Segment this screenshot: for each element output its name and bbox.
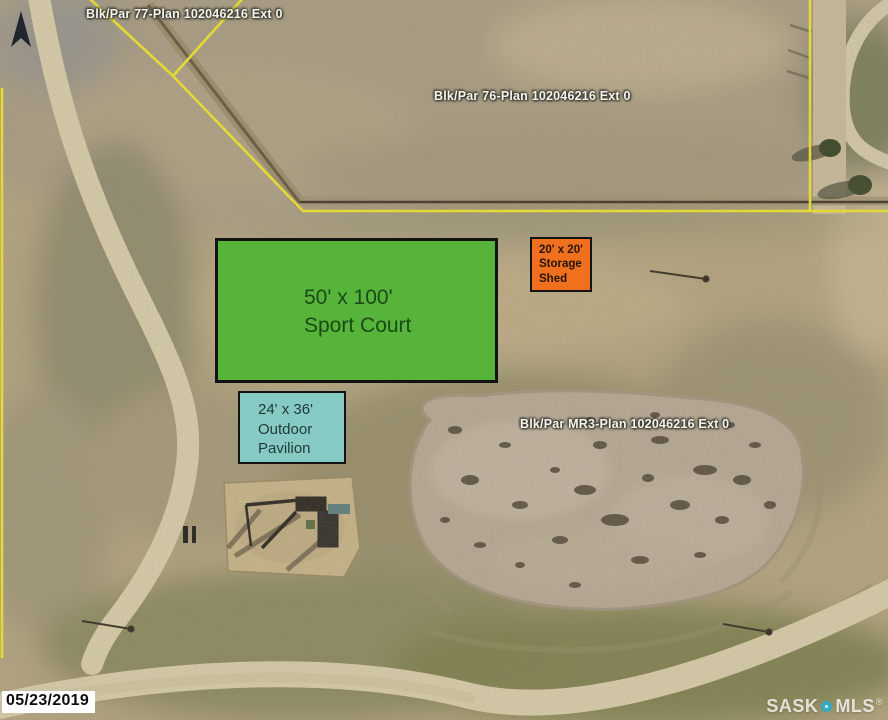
pavilion-name-line2: Pavilion: [258, 439, 344, 459]
parcel-label-76: Blk/Par 76-Plan 102046216 Ext 0: [434, 89, 631, 103]
pavilion-overlay: 24' x 36' Outdoor Pavilion: [238, 391, 346, 464]
north-arrow-icon: [7, 9, 35, 51]
sport-court-name: Sport Court: [304, 312, 495, 340]
mls-pin-icon: [821, 701, 832, 712]
parcel-label-mr3: Blk/Par MR3-Plan 102046216 Ext 0: [520, 417, 729, 431]
pavilion-name-line1: Outdoor: [258, 420, 344, 440]
sask-mls-watermark: SASK MLS ®: [766, 696, 883, 717]
storage-shed-dimensions: 20' x 20': [539, 243, 590, 257]
storage-shed-name-line2: Shed: [539, 272, 590, 286]
storage-shed-name-line1: Storage: [539, 257, 590, 271]
watermark-mls: MLS: [835, 696, 875, 717]
sport-court-overlay: 50' x 100' Sport Court: [215, 238, 498, 383]
storage-shed-overlay: 20' x 20' Storage Shed: [530, 237, 592, 292]
date-stamp: 05/23/2019: [2, 691, 95, 713]
watermark-sask: SASK: [766, 696, 818, 717]
parcel-label-77: Blk/Par 77-Plan 102046216 Ext 0: [86, 7, 283, 21]
sport-court-dimensions: 50' x 100': [304, 284, 495, 312]
registered-mark: ®: [876, 697, 883, 707]
aerial-map: Blk/Par 77-Plan 102046216 Ext 0 Blk/Par …: [0, 0, 888, 720]
pavilion-dimensions: 24' x 36': [258, 400, 344, 420]
